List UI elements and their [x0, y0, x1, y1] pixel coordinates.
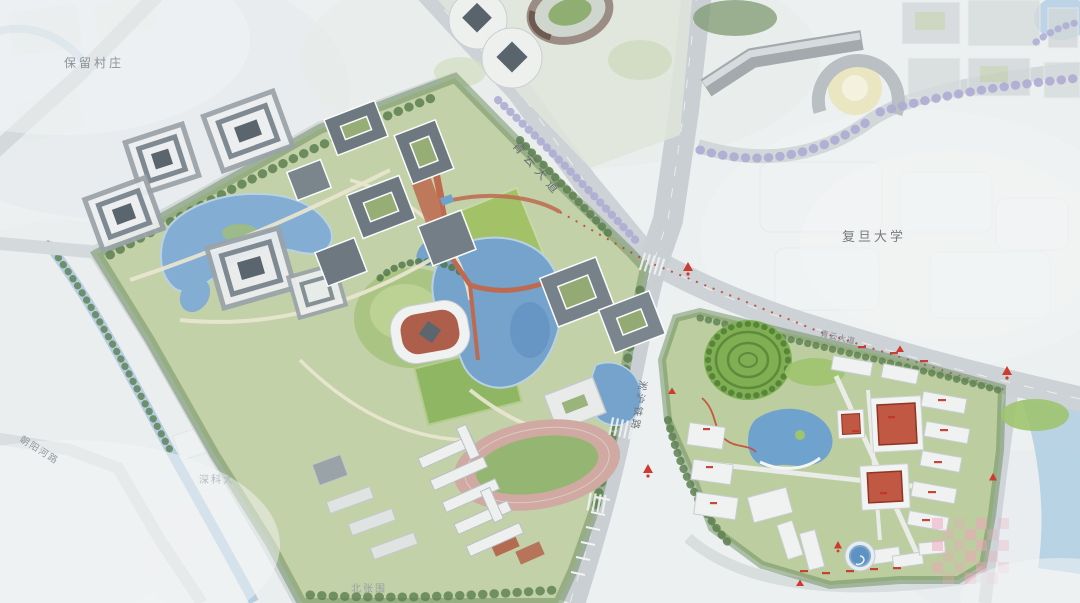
- masterplan-screenshot: 保留村庄 青云大道 淞沪铁路 复旦大学 青云大道 朝阳河路 深科大 北张围: [0, 0, 1080, 603]
- label-fudan-university: 复旦大学: [842, 229, 906, 244]
- spiral-pool: [845, 541, 875, 571]
- east-park-lawn: [1001, 399, 1069, 431]
- round-pavilion-2: [482, 28, 542, 88]
- masterplan-canvas: 保留村庄 青云大道 淞沪铁路 复旦大学 青云大道 朝阳河路 深科大 北张围: [0, 0, 1080, 603]
- label-shenkeda: 深科大: [199, 473, 235, 486]
- label-village: 保留村庄: [64, 55, 124, 70]
- landscape-hill: [704, 320, 792, 400]
- label-beizhangwei: 北张围: [351, 583, 387, 595]
